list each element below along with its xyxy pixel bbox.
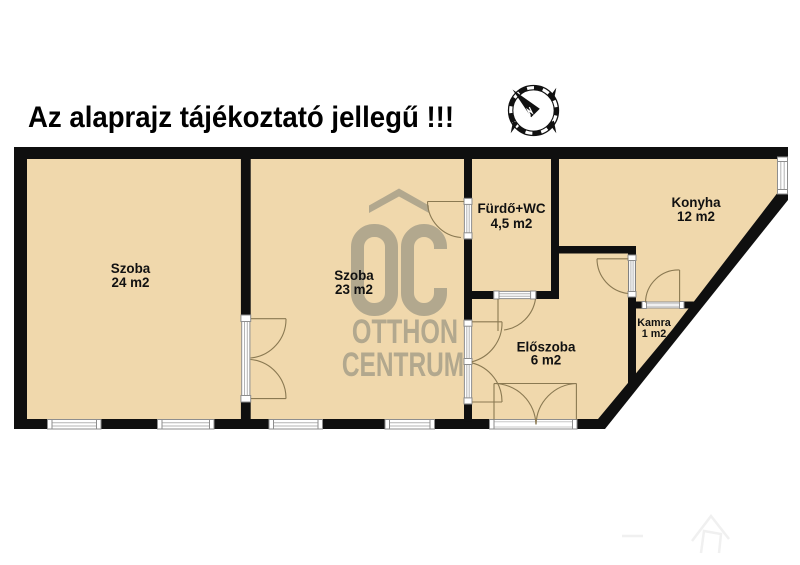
svg-text:1 m2: 1 m2 <box>642 328 667 340</box>
svg-text:Az alaprajz tájékoztató jelleg: Az alaprajz tájékoztató jellegű !!! <box>28 101 454 134</box>
svg-text:Konyha: Konyha <box>671 195 721 210</box>
svg-text:4,5 m2: 4,5 m2 <box>491 216 533 231</box>
svg-text:23 m2: 23 m2 <box>335 282 373 297</box>
svg-text:6 m2: 6 m2 <box>531 352 562 367</box>
svg-text:Szoba: Szoba <box>334 268 374 283</box>
svg-text:Kamra: Kamra <box>637 317 672 329</box>
svg-text:CENTRUM: CENTRUM <box>342 346 464 384</box>
svg-text:Fürdő+WC: Fürdő+WC <box>477 201 545 216</box>
svg-text:Szoba: Szoba <box>111 261 151 276</box>
svg-text:12 m2: 12 m2 <box>677 209 715 224</box>
svg-text:24 m2: 24 m2 <box>112 275 150 290</box>
